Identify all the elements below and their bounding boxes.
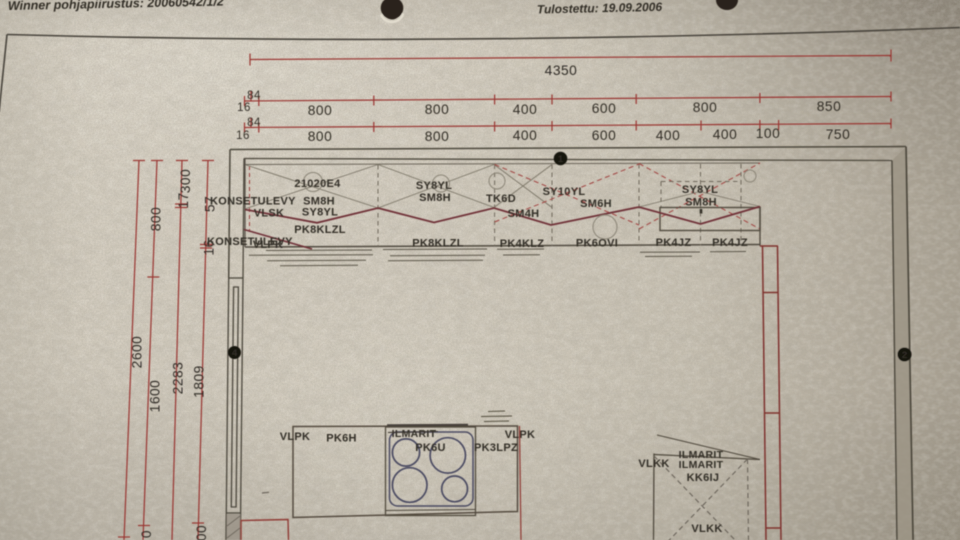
svg-text:Tulostettu: 19.09.2006: Tulostettu: 19.09.2006 bbox=[537, 0, 663, 16]
svg-text:VLKK: VLKK bbox=[691, 523, 722, 535]
svg-text:00: 00 bbox=[194, 525, 209, 540]
svg-text:400: 400 bbox=[513, 128, 538, 143]
svg-text:800: 800 bbox=[308, 129, 333, 144]
svg-text:400: 400 bbox=[513, 102, 538, 117]
svg-text:750: 750 bbox=[826, 127, 851, 142]
svg-text:VLKK: VLKK bbox=[638, 458, 669, 470]
svg-text:VLPK: VLPK bbox=[505, 429, 536, 441]
svg-text:800: 800 bbox=[308, 103, 333, 118]
svg-text:17: 17 bbox=[176, 192, 191, 208]
svg-text:1809: 1809 bbox=[192, 365, 207, 398]
svg-text:PK3LPZ: PK3LPZ bbox=[474, 442, 518, 454]
svg-text:800: 800 bbox=[425, 129, 450, 144]
svg-text:PK6H: PK6H bbox=[326, 433, 357, 445]
svg-text:SM6H: SM6H bbox=[580, 198, 612, 210]
svg-text:PK6OVI: PK6OVI bbox=[576, 238, 618, 250]
svg-text:SM4H: SM4H bbox=[508, 208, 540, 220]
svg-text:100: 100 bbox=[756, 126, 781, 141]
svg-text:KONSETULEVY: KONSETULEVY bbox=[210, 196, 296, 208]
svg-text:PK8KLZL: PK8KLZL bbox=[294, 224, 346, 236]
svg-text:16: 16 bbox=[236, 130, 250, 142]
svg-text:300: 300 bbox=[178, 169, 193, 194]
svg-text:ILMARIT: ILMARIT bbox=[392, 428, 437, 440]
svg-text:VLSK: VLSK bbox=[254, 208, 285, 220]
svg-text:400: 400 bbox=[713, 127, 738, 142]
svg-text:84: 84 bbox=[247, 117, 261, 129]
svg-text:ILMARIT: ILMARIT bbox=[679, 459, 724, 471]
svg-text:600: 600 bbox=[592, 101, 617, 116]
svg-text:VLPK: VLPK bbox=[280, 431, 311, 443]
svg-text:PK4JZ: PK4JZ bbox=[656, 237, 692, 249]
svg-text:VLPK: VLPK bbox=[253, 239, 284, 251]
svg-text:800: 800 bbox=[693, 100, 718, 115]
svg-text:TK6D: TK6D bbox=[486, 193, 516, 205]
svg-text:600: 600 bbox=[592, 128, 617, 143]
svg-text:84: 84 bbox=[247, 90, 261, 102]
svg-text:0: 0 bbox=[139, 530, 154, 538]
svg-text:PK4KLZ: PK4KLZ bbox=[500, 238, 545, 250]
svg-text:400: 400 bbox=[656, 128, 681, 143]
svg-text:16: 16 bbox=[237, 102, 251, 114]
svg-text:850: 850 bbox=[817, 99, 842, 114]
svg-text:1600: 1600 bbox=[148, 380, 163, 413]
svg-text:PK6U: PK6U bbox=[415, 442, 446, 454]
svg-text:800: 800 bbox=[149, 207, 164, 232]
svg-text:SY8YL: SY8YL bbox=[302, 207, 338, 219]
svg-text:KK6IJ: KK6IJ bbox=[687, 472, 720, 484]
svg-text:4: 4 bbox=[232, 348, 238, 359]
svg-text:2: 2 bbox=[902, 350, 907, 361]
svg-text:SY8YL: SY8YL bbox=[416, 180, 452, 192]
svg-text:PK4JZ: PK4JZ bbox=[712, 237, 748, 249]
svg-text:SM8H: SM8H bbox=[419, 192, 451, 204]
svg-text:2283: 2283 bbox=[171, 362, 186, 395]
svg-text:800: 800 bbox=[425, 102, 450, 117]
svg-text:2600: 2600 bbox=[130, 336, 145, 369]
svg-text:SM8H: SM8H bbox=[685, 197, 717, 209]
svg-text:PK8KLZL: PK8KLZL bbox=[412, 238, 464, 250]
svg-text:SY10YL: SY10YL bbox=[543, 186, 586, 198]
svg-text:SY8YL: SY8YL bbox=[682, 184, 718, 196]
svg-text:4350: 4350 bbox=[545, 63, 578, 78]
svg-text:1: 1 bbox=[558, 154, 564, 165]
svg-text:21020E4: 21020E4 bbox=[294, 178, 341, 190]
